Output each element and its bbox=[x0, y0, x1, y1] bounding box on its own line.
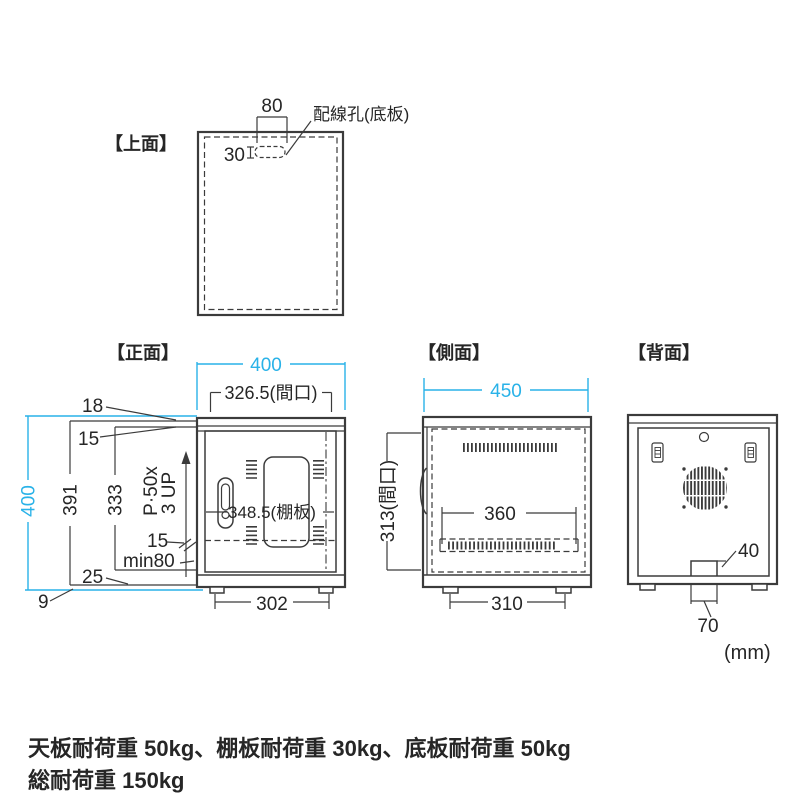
front-dim-height-total: 400 bbox=[19, 416, 40, 590]
side-view-label: 【側面】 bbox=[418, 342, 490, 363]
side-view: 【側面】 450 bbox=[378, 342, 591, 615]
side-dim-shelf-depth: 360 bbox=[442, 504, 576, 544]
back-hanger-hole bbox=[700, 433, 709, 442]
leader-40 bbox=[722, 551, 736, 567]
side-shelf-hidden bbox=[440, 539, 578, 552]
leader-9 bbox=[50, 589, 73, 601]
svg-text:400: 400 bbox=[250, 355, 282, 376]
load-note-line2: 総耐荷重 150kg bbox=[28, 768, 185, 793]
front-foot-right bbox=[319, 587, 333, 593]
top-view: 【上面】 80 30 配線孔(底板) bbox=[105, 96, 409, 315]
unit-label: (mm) bbox=[724, 642, 771, 664]
top-dim-30: 30 bbox=[224, 145, 254, 166]
top-outline bbox=[198, 132, 343, 315]
back-latch-left bbox=[652, 443, 663, 462]
dim-shelf-15: 15 bbox=[147, 531, 168, 552]
technical-drawing-page: 【上面】 80 30 配線孔(底板) 【正面】 bbox=[0, 0, 800, 800]
front-view: 【正面】 400 bbox=[19, 343, 346, 615]
side-dim-height-opening: 313(間口) bbox=[378, 433, 421, 570]
pitch-text-2: 3 UP bbox=[159, 472, 180, 514]
back-foot-left bbox=[640, 584, 655, 590]
side-foot-left bbox=[443, 587, 458, 593]
dim-top-18: 18 bbox=[82, 396, 103, 417]
cable-notch bbox=[691, 561, 717, 576]
fan-vent-grille bbox=[682, 467, 727, 508]
load-note-line1: 天板耐荷重 50kg、棚板耐荷重 30kg、底板耐荷重 50kg bbox=[28, 736, 571, 761]
leader-shelf-15 bbox=[167, 542, 184, 543]
back-latch-right bbox=[745, 443, 756, 462]
leader-18 bbox=[106, 407, 176, 420]
wiring-hole-note: 配線孔(底板) bbox=[313, 105, 409, 124]
dim-min80: min80 bbox=[123, 551, 175, 572]
fan-screw-hole bbox=[682, 467, 685, 470]
back-view-label: 【背面】 bbox=[628, 342, 700, 363]
front-dim-333: 333 bbox=[106, 427, 127, 570]
svg-text:302: 302 bbox=[256, 594, 288, 615]
leader-15 bbox=[100, 427, 176, 437]
back-view: 【背面】 bbox=[628, 342, 777, 664]
side-dim-depth-total: 450 bbox=[424, 378, 588, 412]
svg-text:333: 333 bbox=[106, 484, 127, 516]
dim-hole-height: 30 bbox=[224, 145, 245, 166]
wiring-hole-leader bbox=[286, 121, 311, 155]
svg-text:391: 391 bbox=[61, 484, 82, 516]
dim-foot-9: 9 bbox=[38, 592, 49, 613]
front-dim-shelf-width: 348.5(棚板) bbox=[206, 503, 334, 522]
fan-screw-hole bbox=[682, 505, 685, 508]
svg-text:400: 400 bbox=[19, 485, 40, 517]
dim-bottom-25: 25 bbox=[82, 567, 103, 588]
dim-hole-width: 80 bbox=[261, 96, 282, 117]
svg-text:360: 360 bbox=[484, 504, 516, 525]
back-dim-notch-width: 70 bbox=[691, 584, 719, 637]
leader-25 bbox=[106, 578, 128, 584]
svg-text:70: 70 bbox=[697, 616, 718, 637]
svg-text:348.5(棚板): 348.5(棚板) bbox=[228, 503, 316, 522]
dim-notch-height: 40 bbox=[738, 541, 759, 562]
wiring-hole-slot bbox=[255, 147, 285, 158]
back-foot-right bbox=[752, 584, 767, 590]
pitch-arrow-head bbox=[182, 451, 191, 464]
top-view-label: 【上面】 bbox=[105, 134, 177, 154]
svg-text:326.5(間口): 326.5(間口) bbox=[224, 383, 317, 403]
top-dim-80: 80 bbox=[257, 96, 287, 143]
front-dim-width-opening: 326.5(間口) bbox=[211, 383, 332, 412]
svg-text:313(間口): 313(間口) bbox=[378, 460, 399, 542]
svg-text:310: 310 bbox=[491, 594, 523, 615]
front-door bbox=[205, 431, 336, 572]
front-dim-foot-span: 302 bbox=[215, 594, 329, 615]
side-foot-right bbox=[556, 587, 571, 593]
leader-min80 bbox=[180, 561, 194, 563]
door-window bbox=[264, 457, 309, 547]
dimension-diagram: 【上面】 80 30 配線孔(底板) 【正面】 bbox=[0, 0, 800, 800]
front-foot-left bbox=[210, 587, 224, 593]
front-view-label: 【正面】 bbox=[107, 343, 179, 363]
side-dim-foot-span: 310 bbox=[450, 594, 565, 615]
load-capacity-notes: 天板耐荷重 50kg、棚板耐荷重 30kg、底板耐荷重 50kg 総耐荷重 15… bbox=[28, 736, 571, 793]
fan-screw-hole bbox=[724, 505, 727, 508]
fan-screw-hole bbox=[724, 467, 727, 470]
dim-top-15: 15 bbox=[78, 429, 99, 450]
svg-text:450: 450 bbox=[490, 381, 522, 402]
